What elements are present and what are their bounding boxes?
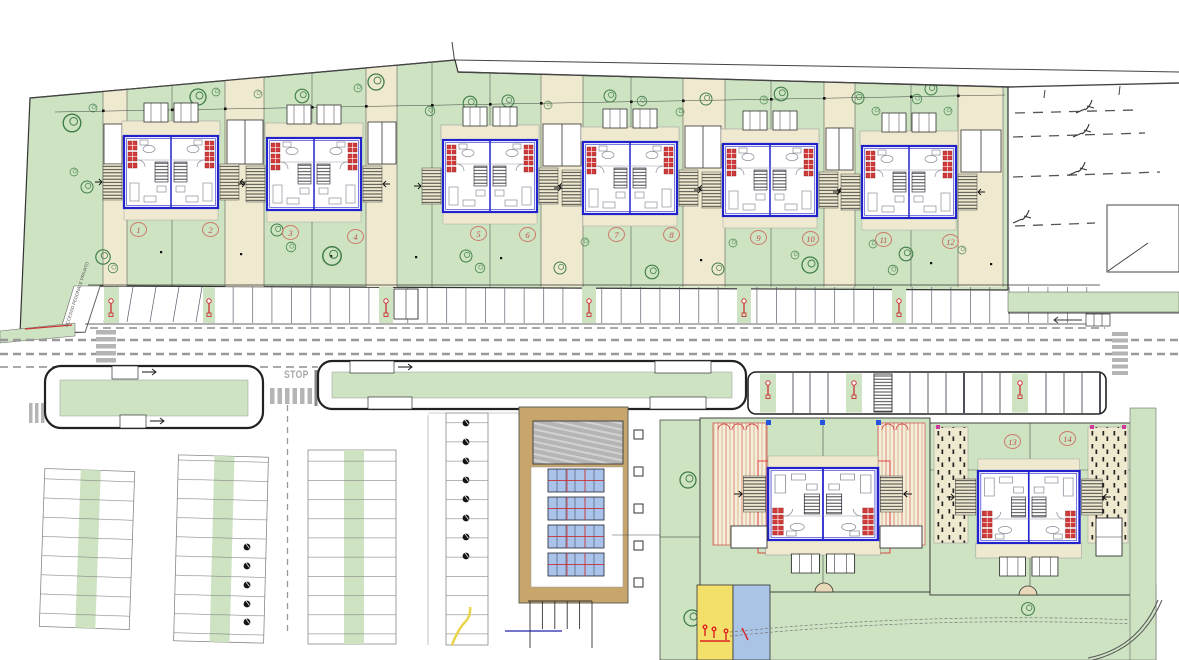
traffic-island-west [45,366,263,428]
lot-badge-3: 3 [282,225,299,240]
parking-block-3 [308,450,396,644]
lot-badge-8: 8 [663,227,680,242]
lot-badge-2: 2 [202,222,219,237]
site-plan-drawing [0,0,1179,660]
playground [697,585,770,660]
lot-badge-9: 9 [750,230,767,245]
lot-badge-10: 10 [802,231,819,246]
lot-badge-6: 6 [519,227,536,242]
pool-fence [528,601,592,648]
stop-road-marking: STOP [284,369,309,381]
parking-block-2 [174,455,269,643]
lot-badge-1: 1 [130,222,147,237]
south-parcels [660,408,1162,660]
lot-badge-13: 13 [1004,434,1021,449]
lot-badge-11: 11 [875,232,892,247]
lot-badge-5: 5 [470,226,487,241]
lower-parking-row [748,372,1106,414]
crosswalk-center [270,388,312,404]
lot-badge-12: 12 [942,234,959,249]
lot-badge-14: 14 [1059,431,1076,446]
parking-block-4 [428,413,520,645]
site-plan-canvas: 1 2 3 4 5 6 7 8 9 10 11 12 13 14 STOP AC… [0,0,1179,660]
pool-complex [505,407,662,648]
crosswalk-right [1112,332,1128,375]
parcel-red-duplex [700,418,930,592]
lot-badge-4: 4 [347,229,364,244]
upper-parking-row [85,285,1105,324]
lot-badge-7: 7 [608,227,625,242]
traffic-island-center [318,361,746,409]
parking-block-1 [39,468,134,629]
light-posts [634,430,643,587]
parcel-13-14 [930,423,1135,595]
